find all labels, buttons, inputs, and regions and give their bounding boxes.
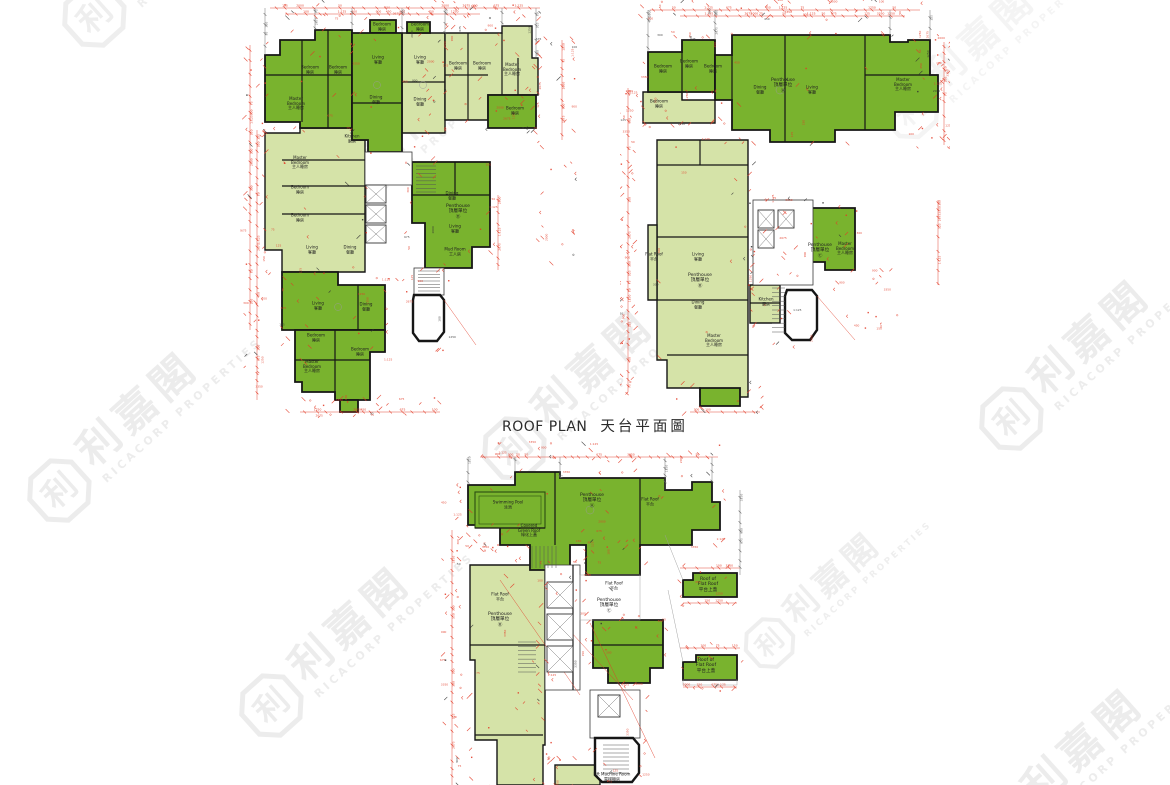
svg-text:300: 300	[452, 681, 456, 687]
svg-text:150: 150	[581, 651, 585, 657]
svg-text:300: 300	[657, 248, 661, 254]
svg-text:900: 900	[872, 269, 878, 273]
svg-text:75: 75	[716, 644, 720, 648]
svg-text:125: 125	[864, 12, 870, 16]
watermark-en: RICACORP PROPERTIES	[802, 519, 934, 639]
svg-text:150: 150	[385, 5, 391, 9]
ricacorp-logo-icon: 利	[225, 659, 318, 752]
svg-text:900: 900	[628, 118, 632, 124]
svg-text:150: 150	[628, 197, 632, 203]
svg-text:150: 150	[250, 299, 254, 305]
svg-text:450: 450	[734, 60, 740, 64]
dimension-chain	[514, 457, 517, 472]
svg-text:300: 300	[606, 651, 612, 655]
svg-text:50: 50	[516, 453, 520, 457]
svg-text:75: 75	[335, 17, 339, 21]
svg-text:100: 100	[452, 668, 456, 674]
svg-text:2675: 2675	[393, 11, 401, 15]
svg-text:50: 50	[407, 246, 411, 250]
svg-text:1250: 1250	[748, 275, 752, 283]
svg-text:150: 150	[876, 327, 882, 331]
dimension-chain	[501, 8, 504, 26]
svg-text:300: 300	[628, 261, 632, 267]
svg-text:3350: 3350	[740, 494, 744, 502]
svg-text:125: 125	[620, 118, 626, 122]
svg-text:125: 125	[410, 275, 414, 281]
ricacorp-logo-icon: 利	[48, 0, 141, 62]
svg-text:2000: 2000	[938, 36, 946, 40]
svg-text:2000: 2000	[250, 158, 254, 166]
svg-text:50: 50	[257, 192, 261, 196]
svg-text:675: 675	[726, 6, 732, 10]
svg-text:300: 300	[803, 13, 809, 17]
svg-text:3350: 3350	[365, 297, 369, 305]
svg-text:1250: 1250	[887, 12, 895, 16]
svg-text:675: 675	[400, 408, 406, 412]
svg-text:2675: 2675	[452, 741, 456, 749]
svg-text:50: 50	[898, 11, 902, 15]
watermark-cjk: 利嘉閣	[1015, 639, 1170, 785]
svg-text:675: 675	[596, 529, 602, 533]
ricacorp-watermark: 利利嘉閣RICACORP PROPERTIES	[965, 227, 1170, 465]
watermark-en: RICACORP PROPERTIES	[1052, 263, 1170, 413]
svg-text:75: 75	[628, 146, 632, 150]
svg-text:300: 300	[265, 22, 269, 28]
svg-text:75: 75	[281, 288, 285, 292]
dimension-chain: 125200050200026753006751:125	[270, 4, 540, 10]
svg-text:675: 675	[831, 12, 837, 16]
svg-text:2000: 2000	[751, 12, 759, 16]
svg-text:2675: 2675	[628, 231, 632, 239]
svg-text:2675: 2675	[538, 82, 542, 90]
svg-text:50: 50	[457, 562, 461, 566]
svg-text:1250: 1250	[511, 112, 515, 120]
svg-text:450: 450	[441, 500, 447, 504]
svg-text:75: 75	[508, 456, 512, 460]
svg-text:150: 150	[681, 171, 687, 175]
lift-shaft	[598, 695, 620, 717]
svg-text:150: 150	[801, 120, 805, 126]
ricacorp-watermark: 利利嘉閣RICACORP PROPERTIES	[958, 636, 1170, 785]
lift-shaft	[758, 210, 774, 228]
svg-text:1:125: 1:125	[779, 6, 788, 10]
svg-text:300: 300	[658, 619, 664, 623]
ricacorp-logo-icon: 利	[13, 444, 106, 537]
svg-text:50: 50	[631, 140, 635, 144]
svg-text:300: 300	[857, 231, 863, 235]
svg-text:2675: 2675	[315, 17, 319, 25]
svg-text:1:125: 1:125	[250, 115, 254, 124]
svg-text:3350: 3350	[785, 198, 793, 202]
svg-text:125: 125	[276, 243, 282, 247]
dimension-chain: 752675	[314, 8, 319, 30]
svg-text:300: 300	[653, 282, 659, 286]
svg-text:75: 75	[560, 475, 564, 479]
svg-text:900: 900	[803, 252, 807, 258]
svg-text:900: 900	[455, 757, 459, 763]
svg-text:150: 150	[344, 395, 348, 401]
svg-text:125: 125	[279, 323, 285, 327]
svg-text:1250: 1250	[715, 592, 723, 596]
svg-text:450: 450	[854, 324, 860, 328]
svg-text:2000: 2000	[410, 30, 414, 38]
svg-text:3350: 3350	[352, 62, 360, 66]
svg-text:450: 450	[386, 10, 392, 14]
svg-text:125: 125	[613, 769, 619, 773]
ricacorp-logo-icon: 利	[958, 781, 1051, 785]
svg-text:2000: 2000	[933, 89, 941, 93]
svg-text:100: 100	[700, 644, 706, 648]
svg-text:100: 100	[705, 408, 711, 412]
plan-title-zh: 天台平面圖	[600, 415, 688, 436]
svg-text:2000: 2000	[296, 4, 304, 8]
svg-text:50: 50	[672, 6, 676, 10]
svg-text:3350: 3350	[336, 398, 344, 402]
svg-text:150: 150	[402, 9, 406, 15]
watermark-cjk: 利嘉閣	[70, 302, 254, 474]
dimension-chain: 45015075	[943, 42, 948, 145]
svg-text:1250: 1250	[451, 10, 459, 14]
svg-text:1250: 1250	[945, 124, 950, 128]
svg-text:2000: 2000	[598, 519, 606, 523]
svg-text:450: 450	[257, 292, 261, 298]
svg-text:125: 125	[443, 63, 449, 67]
svg-text:75: 75	[800, 6, 804, 10]
floor-plan-top-right: 501:1256754501:125751250501:125267520007…	[620, 0, 950, 425]
svg-text:900: 900	[653, 97, 657, 103]
svg-text:50: 50	[658, 4, 662, 8]
svg-text:100: 100	[486, 163, 492, 167]
svg-text:50: 50	[492, 197, 496, 201]
svg-text:2000: 2000	[544, 234, 548, 242]
svg-text:2675: 2675	[257, 243, 261, 251]
dimension-chain: 759001:125150300200030050150	[249, 45, 254, 330]
svg-text:3350: 3350	[938, 206, 942, 214]
svg-text:2000: 2000	[679, 456, 683, 464]
svg-text:3350: 3350	[452, 556, 456, 564]
svg-text:125: 125	[790, 132, 794, 138]
svg-text:1:125: 1:125	[338, 10, 347, 14]
svg-text:150: 150	[250, 129, 254, 135]
svg-text:1250: 1250	[628, 294, 632, 302]
dimension-chain: 450	[444, 8, 449, 34]
svg-text:100: 100	[879, 0, 885, 3]
svg-text:900: 900	[625, 255, 631, 259]
svg-text:1250: 1250	[314, 408, 322, 412]
dimension-chain: 1501250	[683, 599, 737, 605]
svg-text:75: 75	[562, 59, 566, 63]
ricacorp-watermark: 利利嘉閣RICACORP PROPERTIES	[13, 299, 267, 537]
svg-text:675: 675	[281, 306, 287, 310]
svg-text:675: 675	[536, 37, 542, 41]
svg-text:75: 75	[443, 128, 447, 132]
svg-text:150: 150	[697, 683, 703, 687]
svg-text:450: 450	[556, 780, 560, 785]
svg-text:1250: 1250	[626, 108, 634, 112]
svg-text:1250: 1250	[449, 335, 457, 339]
svg-text:125: 125	[628, 270, 632, 276]
watermark-cjk: 利嘉閣	[282, 517, 466, 689]
svg-text:2675: 2675	[715, 27, 719, 35]
svg-text:150: 150	[732, 644, 738, 648]
svg-text:2675: 2675	[503, 116, 511, 120]
dimension-chain: 20001506751:125	[683, 683, 737, 689]
svg-text:2675: 2675	[779, 236, 787, 240]
svg-text:1250: 1250	[562, 43, 566, 51]
svg-text:2675: 2675	[240, 229, 247, 233]
dimension-chain: 10075150	[680, 644, 740, 650]
lift-shaft	[778, 210, 794, 228]
svg-text:900: 900	[777, 0, 783, 2]
svg-text:1:125: 1:125	[384, 358, 392, 362]
svg-text:900: 900	[621, 314, 625, 320]
dimension-chain: 12507520009002675	[561, 40, 566, 140]
svg-text:1250: 1250	[642, 772, 650, 776]
svg-text:150: 150	[704, 599, 710, 603]
plan-title: ROOF PLAN 天台平面圖	[502, 415, 688, 436]
floor-plan-top-left: 125200050200026753006751:1251001:1259009…	[240, 0, 580, 430]
svg-text:300: 300	[443, 41, 447, 47]
svg-text:300: 300	[243, 301, 249, 305]
svg-text:75: 75	[458, 764, 462, 768]
svg-text:75: 75	[476, 671, 480, 675]
svg-text:3350: 3350	[574, 660, 578, 668]
svg-text:2675: 2675	[463, 4, 471, 8]
svg-text:450: 450	[919, 63, 923, 69]
dimension-chain: 3350900675	[739, 490, 744, 575]
svg-text:900: 900	[441, 630, 447, 634]
svg-text:2000: 2000	[496, 105, 504, 109]
svg-text:125: 125	[483, 542, 487, 548]
svg-text:3350: 3350	[255, 385, 263, 389]
svg-text:900: 900	[450, 36, 454, 42]
floor-plan-bottom: 3005050675335050335030015010030012526753…	[440, 440, 800, 785]
svg-text:3350: 3350	[641, 75, 649, 79]
svg-text:1:125: 1:125	[453, 512, 461, 516]
lift-shaft	[547, 646, 573, 672]
svg-text:50: 50	[671, 30, 675, 34]
svg-text:3350: 3350	[785, 10, 793, 14]
svg-text:2000: 2000	[498, 196, 502, 204]
svg-text:125: 125	[536, 22, 540, 28]
watermark-cjk: 利嘉閣	[1022, 230, 1170, 402]
svg-text:900: 900	[250, 109, 254, 115]
svg-text:50: 50	[822, 12, 826, 16]
dimension-chain: 75	[559, 457, 564, 478]
svg-text:2675: 2675	[925, 31, 929, 39]
ricacorp-logo-icon: 利	[965, 372, 1058, 465]
svg-text:2000: 2000	[441, 4, 449, 8]
svg-text:675: 675	[494, 4, 500, 8]
svg-text:3350: 3350	[945, 69, 949, 77]
svg-text:3350: 3350	[563, 470, 571, 474]
svg-text:1:125: 1:125	[717, 683, 726, 687]
svg-text:75: 75	[608, 779, 612, 783]
lift-shaft	[366, 225, 386, 243]
svg-text:125: 125	[628, 322, 632, 328]
svg-text:1:125: 1:125	[498, 227, 502, 236]
svg-text:75: 75	[628, 384, 632, 388]
svg-text:3350: 3350	[441, 683, 449, 687]
svg-text:300: 300	[250, 148, 254, 154]
dimension-chain: 1250	[467, 456, 472, 485]
svg-text:2675: 2675	[622, 682, 630, 686]
dimension-chain: 300100	[690, 408, 760, 414]
svg-text:100: 100	[908, 132, 914, 136]
svg-text:675: 675	[740, 538, 744, 544]
svg-text:675: 675	[327, 114, 333, 118]
svg-text:50: 50	[552, 456, 556, 460]
svg-text:利: 利	[986, 393, 1037, 444]
svg-text:2675: 2675	[562, 115, 566, 123]
svg-text:125: 125	[257, 134, 261, 140]
svg-text:300: 300	[452, 605, 456, 611]
svg-text:2675: 2675	[498, 243, 502, 251]
svg-text:900: 900	[708, 8, 712, 14]
dimension-chain: 33503001501003001252675	[451, 530, 456, 785]
svg-text:900: 900	[740, 528, 744, 534]
svg-text:利: 利	[246, 680, 297, 731]
svg-text:1:125: 1:125	[717, 537, 725, 541]
svg-text:300: 300	[257, 345, 261, 351]
svg-text:1250: 1250	[926, 50, 930, 58]
svg-text:3350: 3350	[622, 130, 630, 134]
svg-text:2675: 2675	[406, 299, 414, 303]
svg-text:900: 900	[412, 78, 418, 82]
dimension-chain: 150	[401, 8, 406, 33]
svg-text:125: 125	[536, 102, 540, 108]
lift-shaft	[366, 205, 386, 223]
svg-text:75: 75	[271, 227, 275, 231]
svg-text:1:125: 1:125	[489, 205, 497, 209]
svg-text:1:125: 1:125	[702, 137, 710, 141]
svg-text:900: 900	[562, 103, 566, 109]
svg-text:100: 100	[432, 408, 438, 412]
svg-text:利: 利	[34, 465, 85, 516]
svg-text:75: 75	[773, 196, 777, 200]
svg-text:900: 900	[488, 23, 494, 27]
svg-text:450: 450	[360, 408, 366, 412]
svg-text:50: 50	[628, 288, 632, 292]
svg-text:1:125: 1:125	[257, 235, 261, 244]
svg-text:50: 50	[265, 32, 269, 36]
roof-plan-sheet: 利利嘉閣RICACORP PROPERTIES利利嘉閣RICACORP PROP…	[0, 0, 1170, 785]
svg-text:450: 450	[445, 9, 449, 15]
svg-text:675: 675	[404, 235, 410, 239]
dimension-chain: 125	[929, 10, 934, 40]
dimension-chain	[711, 457, 714, 483]
svg-text:3350: 3350	[691, 545, 699, 549]
svg-text:75: 75	[346, 126, 350, 130]
svg-text:125: 125	[938, 223, 942, 229]
svg-text:900: 900	[418, 279, 424, 283]
svg-text:300: 300	[250, 185, 254, 191]
svg-text:3350: 3350	[877, 12, 885, 16]
svg-text:300: 300	[694, 408, 700, 412]
svg-text:100: 100	[537, 579, 543, 583]
svg-text:50: 50	[536, 12, 540, 16]
svg-text:50: 50	[918, 49, 922, 53]
svg-text:900: 900	[541, 446, 547, 450]
svg-text:100: 100	[261, 296, 267, 300]
dimension-chain: 9002675	[714, 10, 719, 40]
svg-text:75: 75	[944, 92, 948, 96]
svg-text:900: 900	[715, 10, 719, 16]
svg-text:100: 100	[572, 45, 578, 49]
svg-text:50: 50	[524, 453, 528, 457]
svg-text:450: 450	[628, 357, 632, 363]
svg-text:150: 150	[257, 141, 261, 147]
svg-text:100: 100	[438, 316, 442, 322]
svg-text:1250: 1250	[685, 93, 689, 101]
svg-text:1:125: 1:125	[590, 442, 598, 446]
dimension-chain: 1003350	[680, 564, 740, 570]
svg-text:1250: 1250	[528, 26, 532, 34]
svg-text:3350: 3350	[625, 728, 629, 736]
svg-text:1:125: 1:125	[548, 673, 556, 677]
svg-text:75: 75	[598, 561, 602, 565]
svg-text:150: 150	[576, 539, 582, 543]
dimension-chain: 100335026751251:125	[937, 200, 942, 285]
svg-text:900: 900	[571, 105, 577, 109]
svg-text:2000: 2000	[431, 226, 435, 234]
svg-text:1:125: 1:125	[498, 450, 506, 454]
svg-text:50: 50	[338, 4, 342, 8]
svg-text:50: 50	[892, 6, 896, 10]
lift-shaft	[758, 230, 774, 248]
svg-text:125: 125	[591, 541, 595, 547]
svg-text:1250: 1250	[715, 599, 723, 603]
svg-text:1250: 1250	[665, 465, 669, 473]
svg-text:3350: 3350	[529, 440, 537, 444]
svg-text:1250: 1250	[261, 356, 265, 364]
lift-shaft	[366, 185, 386, 203]
svg-text:1:125: 1:125	[514, 4, 523, 8]
svg-text:75: 75	[315, 9, 319, 13]
svg-text:3350: 3350	[503, 629, 507, 637]
svg-text:100: 100	[716, 564, 722, 568]
svg-text:150: 150	[936, 61, 942, 65]
svg-text:450: 450	[695, 580, 701, 584]
svg-text:300: 300	[406, 187, 410, 193]
svg-text:675: 675	[440, 658, 446, 662]
svg-text:1250: 1250	[868, 6, 876, 10]
svg-text:2000: 2000	[427, 59, 435, 63]
svg-text:2000: 2000	[626, 89, 634, 93]
svg-text:50: 50	[370, 411, 374, 415]
svg-text:150: 150	[262, 256, 266, 262]
lift-shaft	[547, 582, 573, 608]
dimension-chain: 30050	[264, 8, 269, 55]
svg-text:100: 100	[303, 10, 309, 14]
svg-text:利: 利	[69, 0, 120, 41]
svg-text:300: 300	[657, 33, 663, 37]
svg-text:450: 450	[402, 80, 408, 84]
svg-text:675: 675	[458, 26, 462, 32]
svg-text:1250: 1250	[468, 456, 472, 464]
svg-text:675: 675	[596, 453, 602, 457]
svg-text:900: 900	[376, 10, 382, 14]
svg-text:1:125: 1:125	[938, 256, 942, 265]
svg-text:75: 75	[250, 101, 254, 105]
svg-text:150: 150	[452, 613, 456, 619]
svg-text:300: 300	[648, 16, 654, 20]
svg-text:2000: 2000	[810, 334, 814, 342]
svg-text:125: 125	[298, 268, 302, 274]
svg-text:2675: 2675	[938, 214, 942, 222]
svg-text:50: 50	[465, 544, 469, 548]
svg-text:3350: 3350	[884, 288, 892, 292]
